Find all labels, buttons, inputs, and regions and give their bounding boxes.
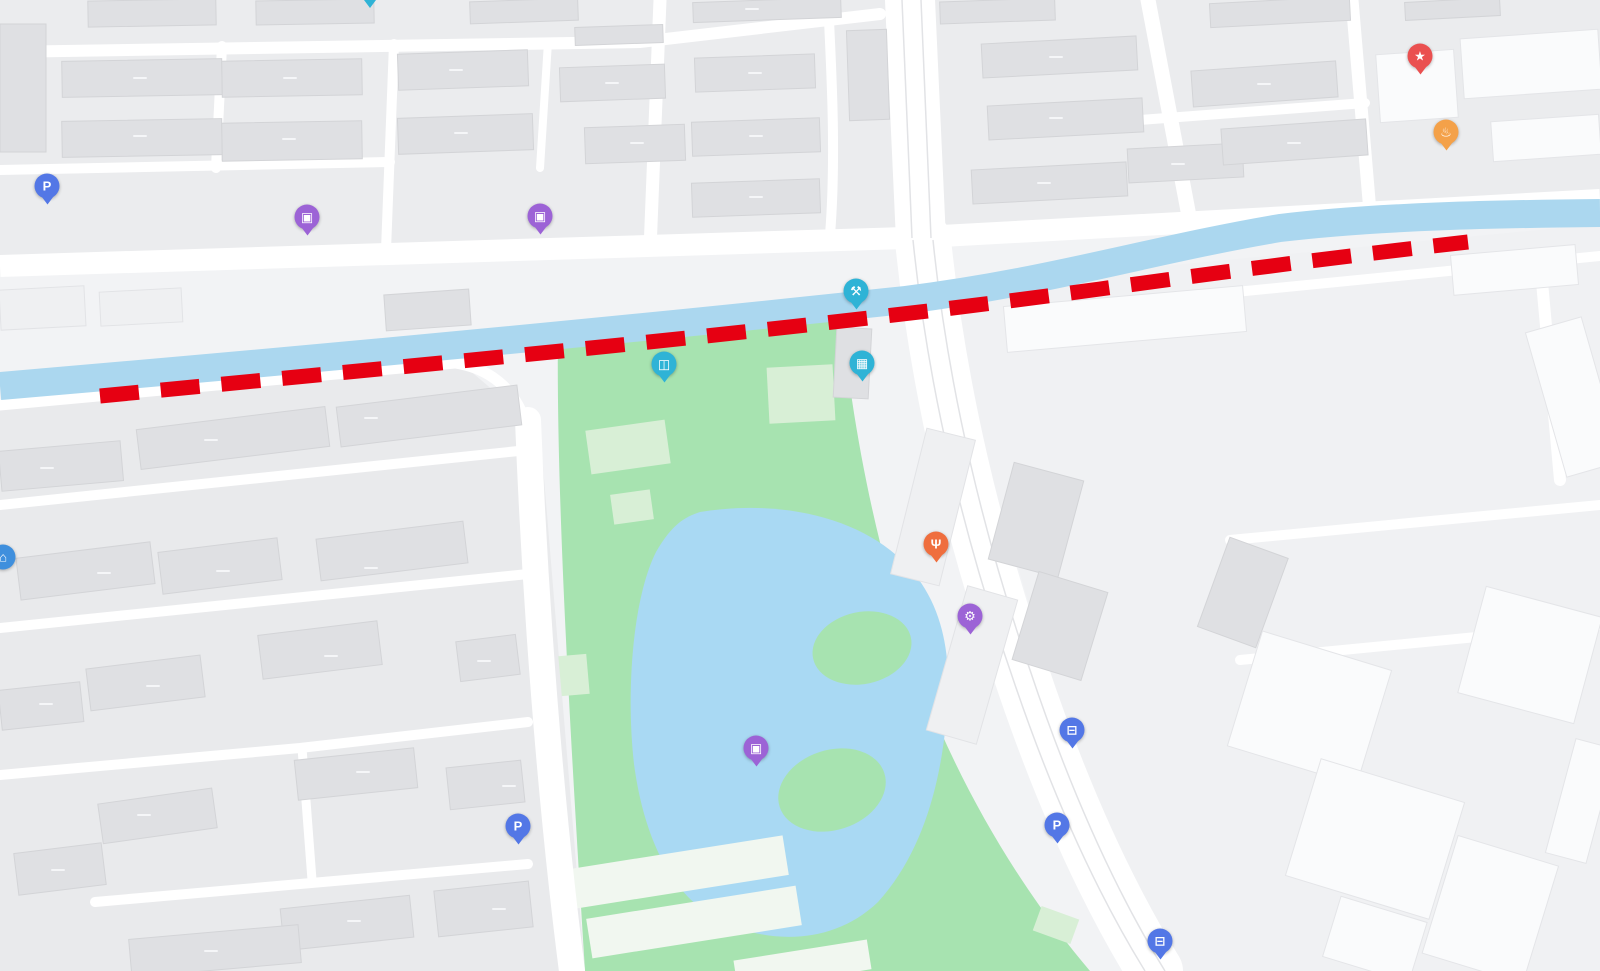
parking-icon: P	[43, 180, 52, 193]
appliance-store-pin[interactable]: ▣	[528, 204, 553, 229]
bus-icon: ⊟	[1155, 935, 1166, 948]
bowl-icon: ♨	[1440, 126, 1452, 139]
ad-building-icon: ▦	[856, 357, 868, 370]
gate-icon: ◫	[658, 358, 670, 371]
shop-icon: ▣	[750, 742, 762, 755]
star-icon: ★	[1414, 50, 1426, 63]
shop-pin[interactable]: ▣	[744, 736, 769, 761]
restaurant-pin[interactable]: ♨	[1434, 120, 1459, 145]
restaurant-pin[interactable]: Ψ	[924, 532, 949, 557]
north-gate-pin[interactable]: ◫	[652, 352, 677, 377]
bus-stop-pin[interactable]: ⊟	[1060, 718, 1085, 743]
chamber-of-commerce-pin[interactable]: ★	[1408, 44, 1433, 69]
foot-massage-pin[interactable]: ⚙	[958, 604, 983, 629]
bus-icon: ⊟	[1067, 724, 1078, 737]
parking-icon: P	[514, 820, 523, 833]
bus-stop-pin[interactable]: ⊟	[1148, 929, 1173, 954]
shop-icon: ▣	[301, 211, 313, 224]
hardware-store-pin[interactable]: ▣	[295, 205, 320, 230]
ad-company-pin[interactable]: ▦	[850, 351, 875, 376]
parking-pin[interactable]: P	[1045, 813, 1070, 838]
appliance-repair-pin[interactable]: ⚒	[844, 279, 869, 304]
fork-icon: Ψ	[931, 538, 942, 551]
home-icon: ⌂	[0, 551, 7, 564]
parking-pin[interactable]: P	[506, 814, 531, 839]
parking-icon: P	[1053, 819, 1062, 832]
parking-pin[interactable]: P	[35, 174, 60, 199]
gear-icon: ⚙	[964, 610, 976, 623]
wrench-icon: ⚒	[850, 285, 862, 298]
map-canvas[interactable]: ▣ ▣ ⚒ ▦ ◫ ★ ♨ Ψ ⚙ ▣ P P	[0, 0, 1600, 971]
map-base-tiles	[0, 0, 1600, 971]
shop-icon: ▣	[534, 210, 546, 223]
